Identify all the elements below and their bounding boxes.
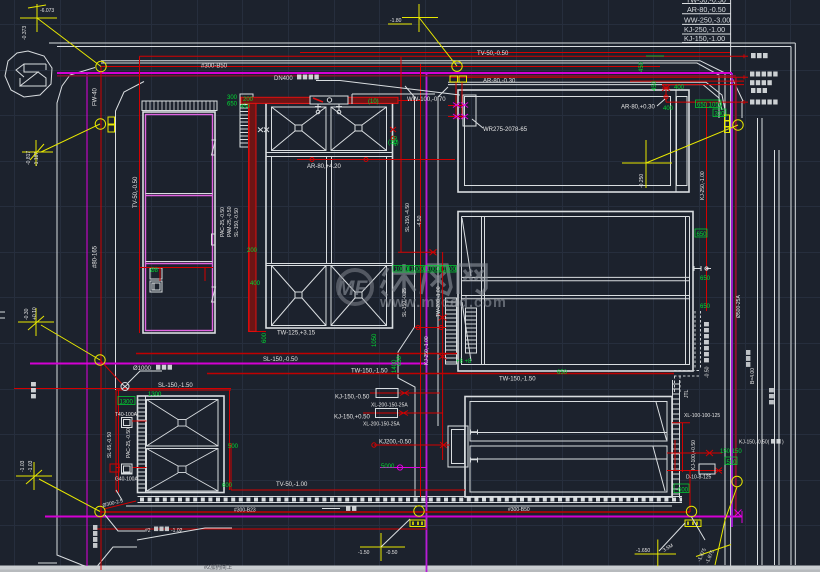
svg-text:#80-165: #80-165 xyxy=(93,245,99,268)
svg-text:B=4.00: B=4.00 xyxy=(750,368,756,384)
svg-text:SL-150,-0.50: SL-150,-0.50 xyxy=(234,208,240,237)
svg-text:KJ-150,+0.50: KJ-150,+0.50 xyxy=(334,415,371,421)
svg-text:DN400: DN400 xyxy=(274,76,293,82)
svg-text:SL-150,-4.50: SL-150,-4.50 xyxy=(405,203,411,232)
svg-text:1300: 1300 xyxy=(148,392,162,398)
svg-text:450: 450 xyxy=(652,80,658,91)
svg-text:-4.50: -4.50 xyxy=(417,215,423,227)
svg-text:KJ-100,+0.50: KJ-100,+0.50 xyxy=(691,440,697,470)
svg-text:TW-125,+3.15: TW-125,+3.15 xyxy=(277,331,316,337)
svg-text:KJ-250,-1.00: KJ-250,-1.00 xyxy=(700,171,706,200)
svg-text:600: 600 xyxy=(222,483,233,489)
svg-text:#2: #2 xyxy=(145,528,151,534)
svg-text:SL-150,-0.25: SL-150,-0.25 xyxy=(402,288,408,317)
svg-text:-600: -600 xyxy=(676,488,689,494)
svg-text:KJ-150,-0.50(: KJ-150,-0.50( xyxy=(739,440,770,446)
svg-text:XL-100-100-125: XL-100-100-125 xyxy=(684,413,720,419)
svg-text:(10): (10) xyxy=(368,99,379,105)
svg-text:SL-65,-0.50: SL-65,-0.50 xyxy=(107,432,113,458)
svg-text:650: 650 xyxy=(227,102,238,108)
svg-text:KJ-250,-1.00: KJ-250,-1.00 xyxy=(684,25,725,34)
svg-text:1300: 1300 xyxy=(120,400,134,406)
svg-text:Ø8: Ø8 xyxy=(150,268,159,274)
svg-text:XL-200-150-25A: XL-200-150-25A xyxy=(371,403,408,409)
svg-text:AR-80,+0.30: AR-80,+0.30 xyxy=(621,105,656,111)
svg-text:-1.80: -1.80 xyxy=(390,18,402,24)
svg-text:500: 500 xyxy=(727,460,738,466)
svg-text:AR-80,-0.30: AR-80,-0.30 xyxy=(483,79,516,85)
svg-text:-1.650: -1.650 xyxy=(636,548,650,554)
svg-text:D-10-8-125: D-10-8-125 xyxy=(686,475,712,481)
svg-text:AR-80,+4.20: AR-80,+4.20 xyxy=(307,164,342,170)
svg-text:400: 400 xyxy=(663,106,674,112)
svg-text:KJ-150,-0.50: KJ-150,-0.50 xyxy=(335,395,370,401)
svg-text:450: 450 xyxy=(393,135,399,146)
svg-text:600: 600 xyxy=(262,332,268,343)
svg-text:450: 450 xyxy=(639,61,645,72)
svg-text:-0.30: -0.30 xyxy=(24,308,30,320)
svg-text:WW-250,-3.00: WW-250,-3.00 xyxy=(684,15,730,24)
svg-text:AR-80,-0.50: AR-80,-0.50 xyxy=(687,5,726,14)
svg-text:+8 +8: +8 +8 xyxy=(456,359,472,365)
svg-text:#300-B23: #300-B23 xyxy=(234,508,256,514)
svg-text:SL-150,-1.50: SL-150,-1.50 xyxy=(158,383,193,389)
svg-text:400: 400 xyxy=(674,85,685,91)
svg-text:650: 650 xyxy=(700,276,711,282)
svg-text:TW-150,-1.50: TW-150,-1.50 xyxy=(351,369,388,375)
svg-text:G40-100A: G40-100A xyxy=(115,477,138,483)
svg-text:-1.02: -1.02 xyxy=(171,528,183,534)
svg-text:-0.50: -0.50 xyxy=(386,550,398,556)
svg-text:+0.10: +0.10 xyxy=(32,307,38,320)
svg-text:KJ-250,-1.00: KJ-250,-1.00 xyxy=(424,336,430,365)
svg-text:PAC-25,-0.50: PAC-25,-0.50 xyxy=(220,207,226,237)
svg-text:FW-40: FW-40 xyxy=(93,87,99,106)
svg-text:300: 300 xyxy=(227,95,238,101)
svg-text:650: 650 xyxy=(397,355,403,366)
svg-text:200: 200 xyxy=(243,97,254,103)
svg-text:JTL: JTL xyxy=(684,389,690,398)
svg-text:650: 650 xyxy=(557,370,568,376)
svg-text:T40-100A: T40-100A xyxy=(115,412,138,418)
svg-text:400: 400 xyxy=(250,281,261,287)
svg-text:XL-200-150-25A: XL-200-150-25A xyxy=(363,422,400,428)
svg-text:#300-B50: #300-B50 xyxy=(508,507,530,513)
svg-text:200: 200 xyxy=(247,248,258,254)
svg-text:TV-50,-0.50: TV-50,-0.50 xyxy=(477,51,509,57)
svg-text:150 150: 150 150 xyxy=(720,449,742,455)
svg-text:-1.03: -1.03 xyxy=(20,460,26,472)
svg-text:-0.250: -0.250 xyxy=(639,174,645,188)
svg-text:450: 450 xyxy=(240,104,251,110)
svg-text:KJ200,-0.50: KJ200,-0.50 xyxy=(379,440,412,446)
svg-text:WR275-2078-65: WR275-2078-65 xyxy=(483,127,528,133)
svg-text:#2加药间上: #2加药间上 xyxy=(204,563,233,571)
svg-text:TV-50,-0.50: TV-50,-0.50 xyxy=(133,176,139,208)
svg-text:Ø1000: Ø1000 xyxy=(133,366,152,372)
svg-text:TW-150,-1.50: TW-150,-1.50 xyxy=(499,377,536,383)
svg-text:TV-50,-1.00: TV-50,-1.00 xyxy=(276,482,308,488)
svg-text:WW-100,-0.70: WW-100,-0.70 xyxy=(407,97,446,103)
svg-text:650: 650 xyxy=(697,232,708,238)
svg-text:Ø500-25A: Ø500-25A xyxy=(736,295,742,318)
svg-text:-1.187: -1.187 xyxy=(34,152,40,166)
svg-text:#300-B50: #300-B50 xyxy=(201,64,228,70)
svg-text:1050: 1050 xyxy=(372,333,378,347)
svg-text:-0.373: -0.373 xyxy=(22,26,28,40)
svg-text:KJ-150,-1.00: KJ-150,-1.00 xyxy=(684,34,725,43)
svg-text:TW-200,-1.00: TW-200,-1.00 xyxy=(436,286,442,317)
svg-text:SL-150,-0.50: SL-150,-0.50 xyxy=(263,357,298,363)
svg-text:MF: MF xyxy=(337,277,368,300)
svg-text:PAM-25,-0.50: PAM-25,-0.50 xyxy=(227,206,233,237)
svg-text:-0.817: -0.817 xyxy=(26,151,32,165)
svg-text:-0.50: -0.50 xyxy=(705,366,711,378)
svg-text:-1.50: -1.50 xyxy=(358,550,370,556)
svg-text:-1.03: -1.03 xyxy=(28,460,34,472)
svg-text:PAC-25,-0.50: PAC-25,-0.50 xyxy=(126,428,132,458)
svg-text:-6.073: -6.073 xyxy=(40,8,54,14)
svg-text:500: 500 xyxy=(228,444,239,450)
svg-text:650: 650 xyxy=(700,304,711,310)
svg-text:5000: 5000 xyxy=(381,464,395,470)
